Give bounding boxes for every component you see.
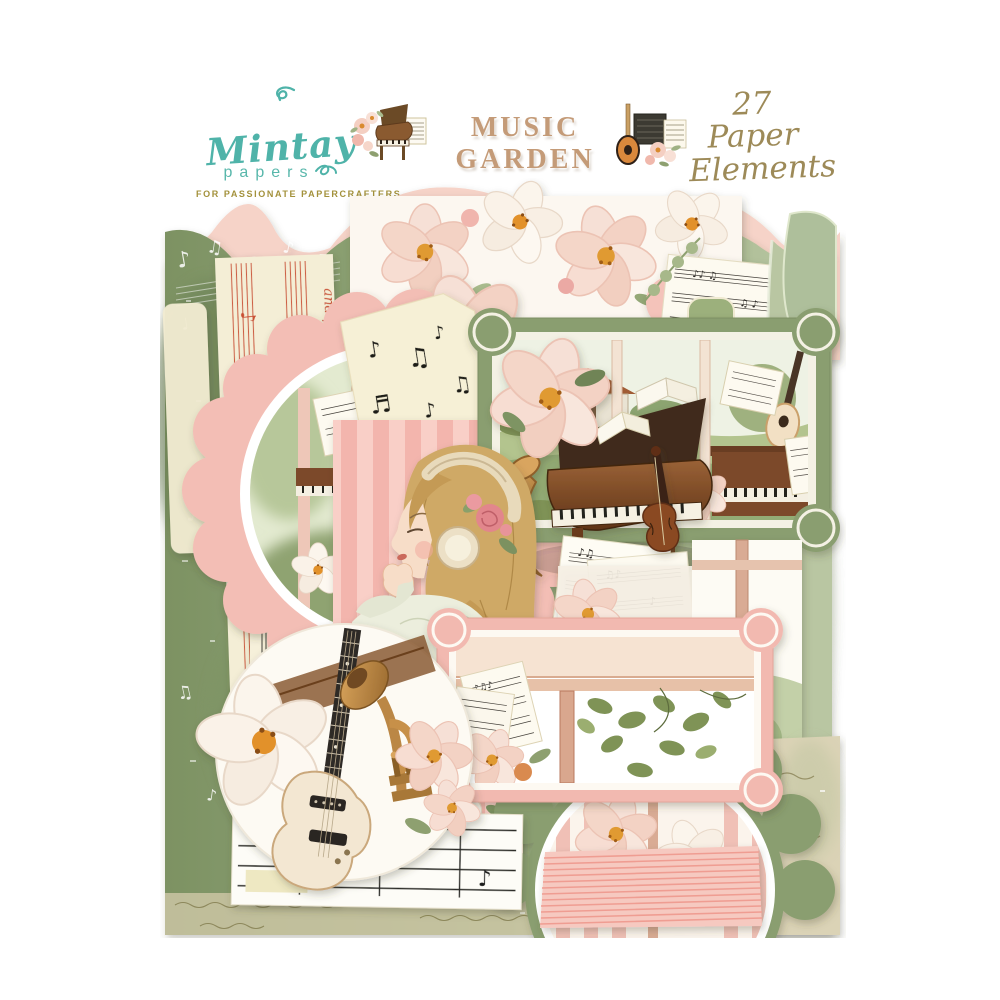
product-photo: Mintay papers FOR PASSIONATE PAPERCRAFTE… — [0, 0, 1000, 1000]
svg-text:♫: ♫ — [205, 236, 224, 259]
svg-text:♪: ♪ — [236, 309, 261, 324]
svg-text:♫: ♫ — [405, 342, 433, 375]
svg-text:♫ ♪: ♫ ♪ — [739, 298, 759, 311]
svg-text:♬: ♬ — [368, 389, 394, 420]
svg-text:♪♫: ♪♫ — [577, 546, 595, 561]
pink-ticket-frame: ♪♫♪♪♪♫♪ — [427, 608, 783, 812]
pink-pinstripe-paper — [540, 846, 762, 928]
paper-elements-stack: ♪ ♫ ♬ ♪ ♫ ♪ ♩ ♪ ♫ ♪ — [0, 0, 1000, 1000]
svg-text:♫: ♫ — [450, 371, 473, 399]
svg-text:♪: ♪ — [477, 867, 491, 892]
